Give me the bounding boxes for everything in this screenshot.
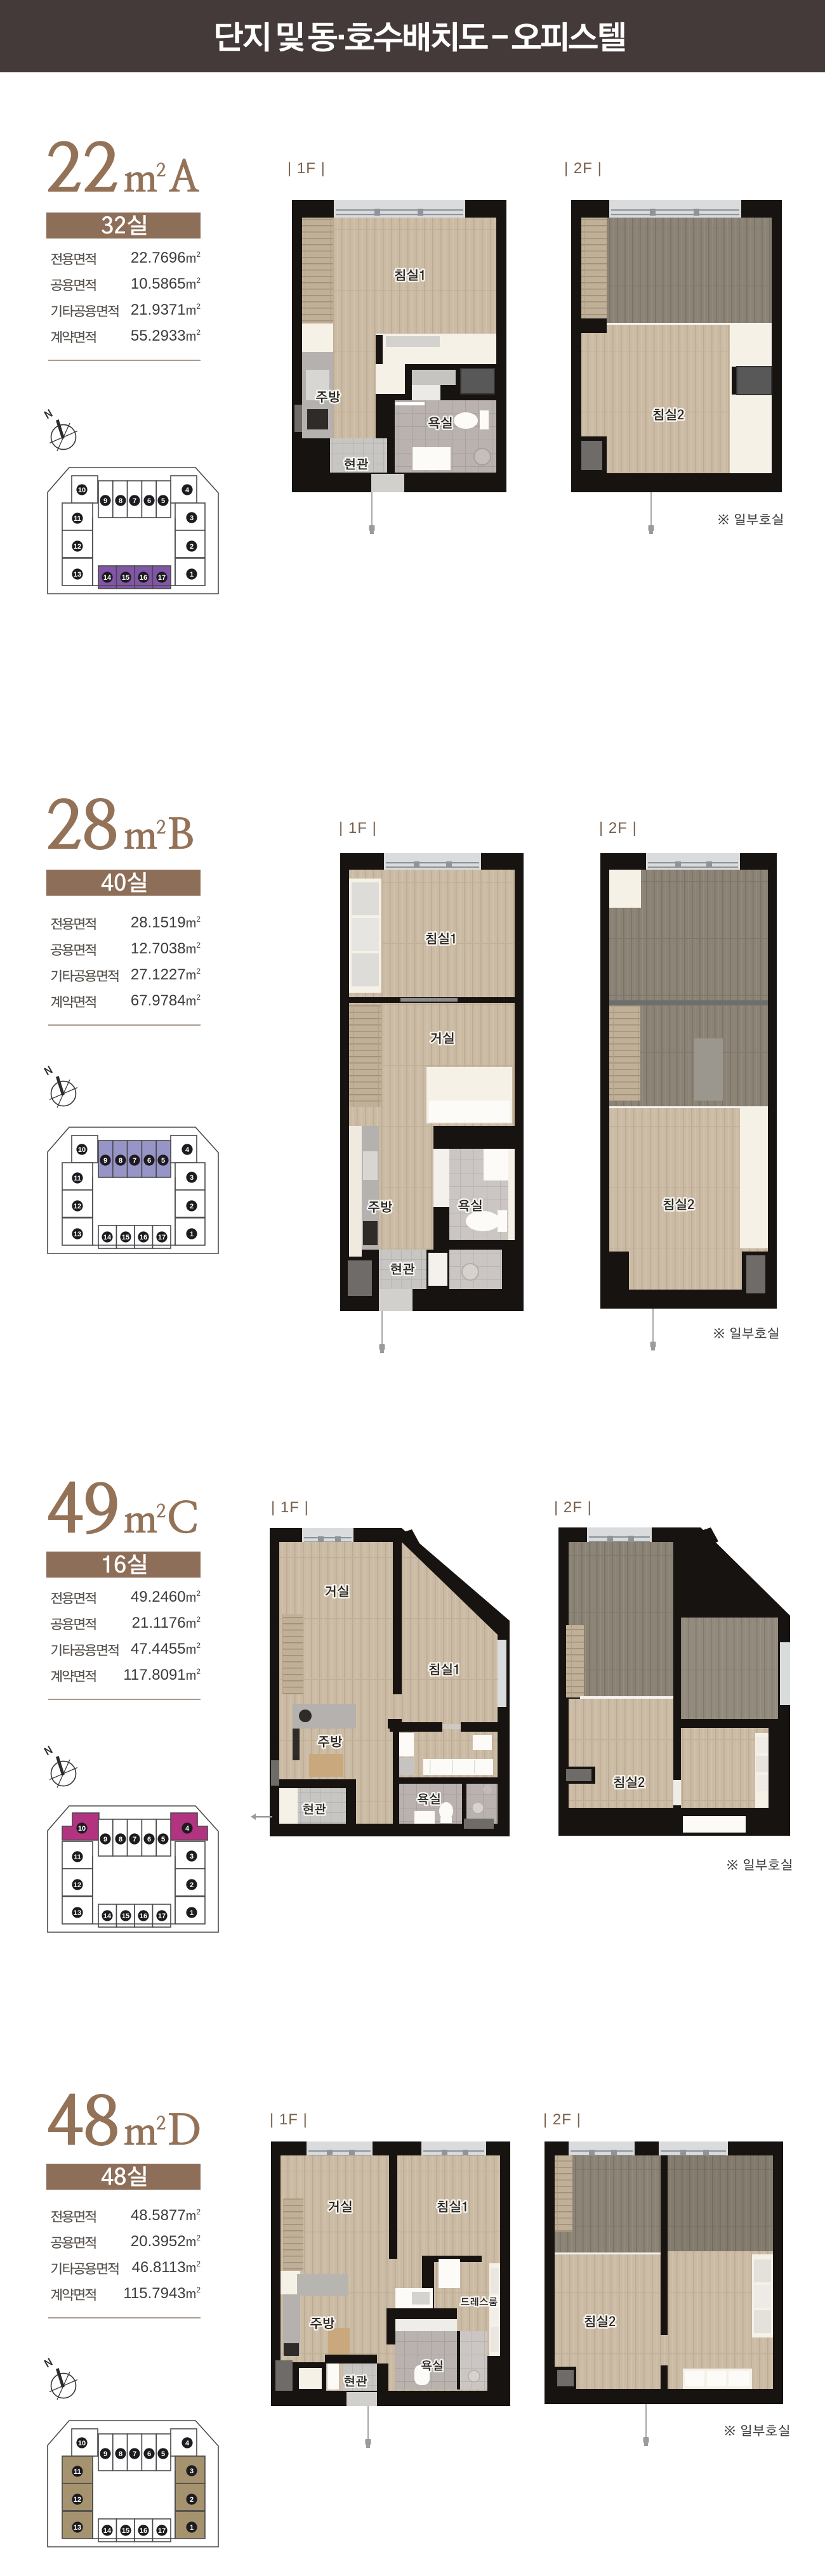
svg-text:4: 4 (185, 1146, 190, 1154)
svg-text:17: 17 (158, 2527, 166, 2535)
svg-text:13: 13 (74, 1909, 81, 1917)
svg-text:15: 15 (122, 574, 129, 582)
svg-text:11: 11 (74, 2468, 81, 2476)
svg-text:5: 5 (161, 1836, 165, 1843)
svg-text:12: 12 (74, 543, 81, 551)
svg-text:12: 12 (74, 1203, 81, 1210)
svg-text:2: 2 (190, 1203, 194, 1210)
svg-text:9: 9 (103, 1157, 107, 1165)
svg-text:6: 6 (147, 1157, 151, 1165)
svg-text:15: 15 (122, 1912, 129, 1920)
svg-text:6: 6 (147, 497, 151, 505)
svg-text:4: 4 (185, 1825, 190, 1833)
svg-text:8: 8 (119, 1836, 122, 1843)
svg-text:2: 2 (190, 1881, 194, 1889)
svg-text:1: 1 (190, 1231, 194, 1238)
svg-text:14: 14 (103, 574, 112, 582)
svg-text:14: 14 (103, 1234, 112, 1241)
svg-text:16: 16 (140, 574, 147, 582)
svg-text:10: 10 (78, 2440, 86, 2447)
svg-text:11: 11 (74, 1175, 81, 1182)
svg-text:11: 11 (74, 1854, 81, 1861)
svg-text:5: 5 (161, 497, 165, 505)
svg-text:1: 1 (190, 1909, 194, 1917)
svg-text:13: 13 (74, 2524, 81, 2532)
svg-text:14: 14 (103, 1912, 112, 1920)
svg-text:8: 8 (119, 497, 122, 505)
svg-text:3: 3 (190, 2468, 194, 2475)
svg-text:6: 6 (147, 1836, 151, 1843)
svg-text:1: 1 (190, 2524, 194, 2532)
svg-text:12: 12 (74, 1881, 81, 1889)
svg-text:2: 2 (190, 543, 194, 551)
svg-text:8: 8 (119, 2450, 122, 2458)
svg-text:9: 9 (103, 497, 107, 505)
svg-text:4: 4 (185, 487, 190, 494)
svg-text:3: 3 (190, 1853, 194, 1860)
svg-text:9: 9 (103, 2450, 107, 2458)
svg-text:14: 14 (103, 2527, 112, 2535)
svg-text:17: 17 (158, 1912, 166, 1920)
svg-text:15: 15 (122, 2527, 129, 2535)
svg-text:9: 9 (103, 1836, 107, 1843)
svg-text:17: 17 (158, 1234, 166, 1241)
svg-text:1: 1 (190, 571, 194, 579)
svg-text:7: 7 (133, 1836, 136, 1843)
svg-text:3: 3 (190, 1174, 194, 1182)
svg-text:16: 16 (140, 1912, 147, 1920)
svg-text:15: 15 (122, 1234, 129, 1241)
svg-text:17: 17 (158, 574, 166, 582)
svg-text:13: 13 (74, 571, 81, 579)
svg-text:5: 5 (161, 1157, 165, 1165)
svg-text:2: 2 (190, 2496, 194, 2504)
svg-text:16: 16 (140, 2527, 147, 2535)
svg-text:6: 6 (147, 2450, 151, 2458)
svg-text:10: 10 (78, 1825, 86, 1833)
svg-text:11: 11 (74, 515, 81, 523)
svg-text:13: 13 (74, 1231, 81, 1238)
svg-text:12: 12 (74, 2496, 81, 2504)
svg-text:7: 7 (133, 2450, 136, 2458)
svg-text:5: 5 (161, 2450, 165, 2458)
svg-text:8: 8 (119, 1157, 122, 1165)
svg-text:4: 4 (185, 2440, 190, 2447)
svg-text:7: 7 (133, 1157, 136, 1165)
svg-text:7: 7 (133, 497, 136, 505)
svg-text:16: 16 (140, 1234, 147, 1241)
svg-text:10: 10 (78, 487, 86, 494)
svg-text:10: 10 (78, 1146, 86, 1154)
svg-text:3: 3 (190, 514, 194, 522)
